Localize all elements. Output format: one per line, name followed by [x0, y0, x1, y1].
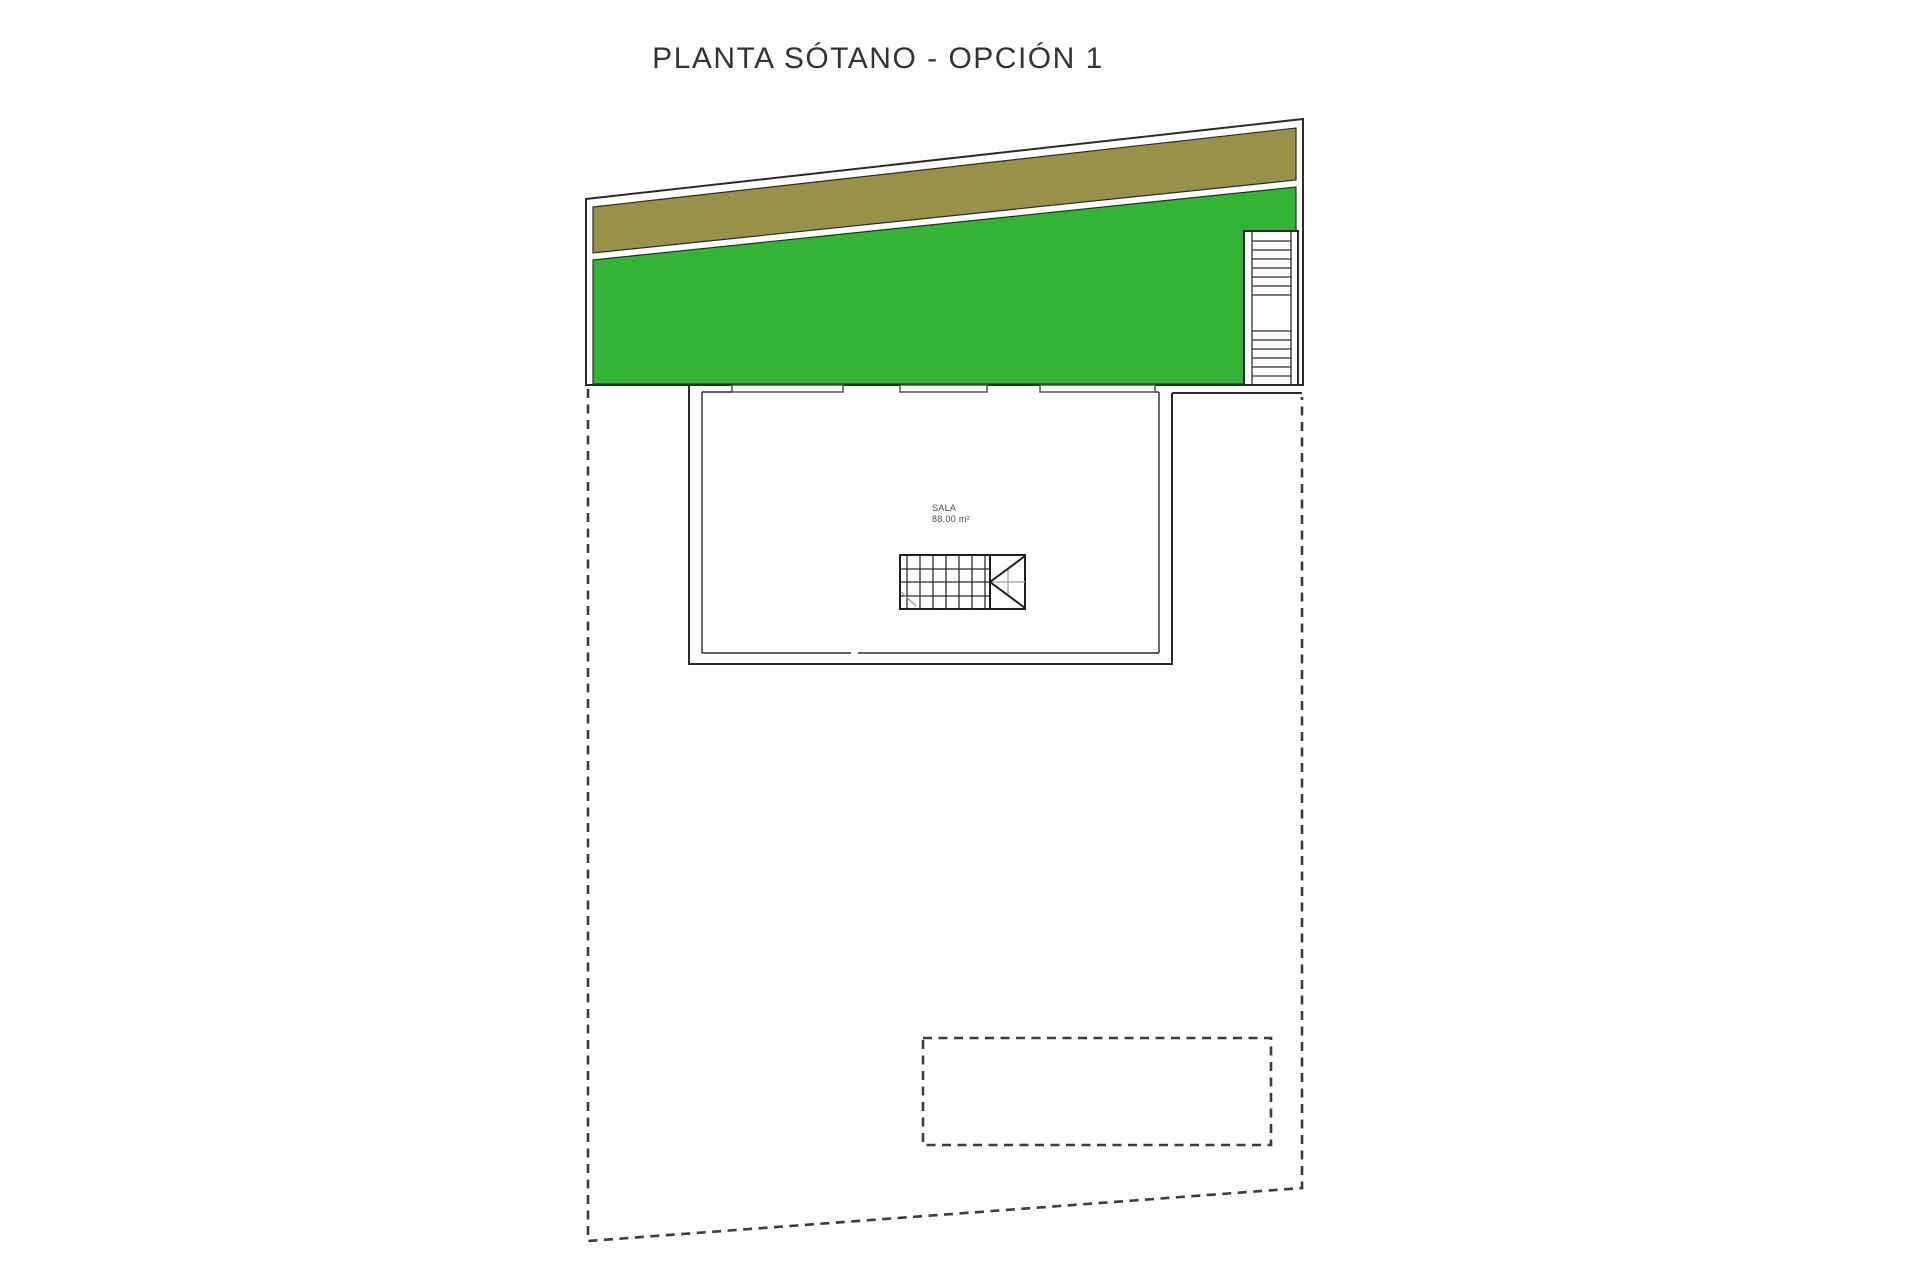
terrace-room-wall-segments — [732, 385, 1155, 392]
basement-room: SALA 88.00 m² — [689, 385, 1172, 664]
interior-stair-symbol — [900, 555, 1025, 609]
dashed-zone-rectangle — [923, 1038, 1271, 1145]
exterior-stair-symbol — [1244, 231, 1298, 385]
room-name-label: SALA — [932, 503, 956, 513]
room-area-label: 88.00 m² — [932, 514, 970, 524]
floor-plan-drawing: SALA 88.00 m² — [0, 0, 1920, 1280]
terrace-structure — [586, 119, 1303, 385]
floor-plan-page: PLANTA SÓTANO - OPCIÓN 1 — [0, 0, 1920, 1280]
